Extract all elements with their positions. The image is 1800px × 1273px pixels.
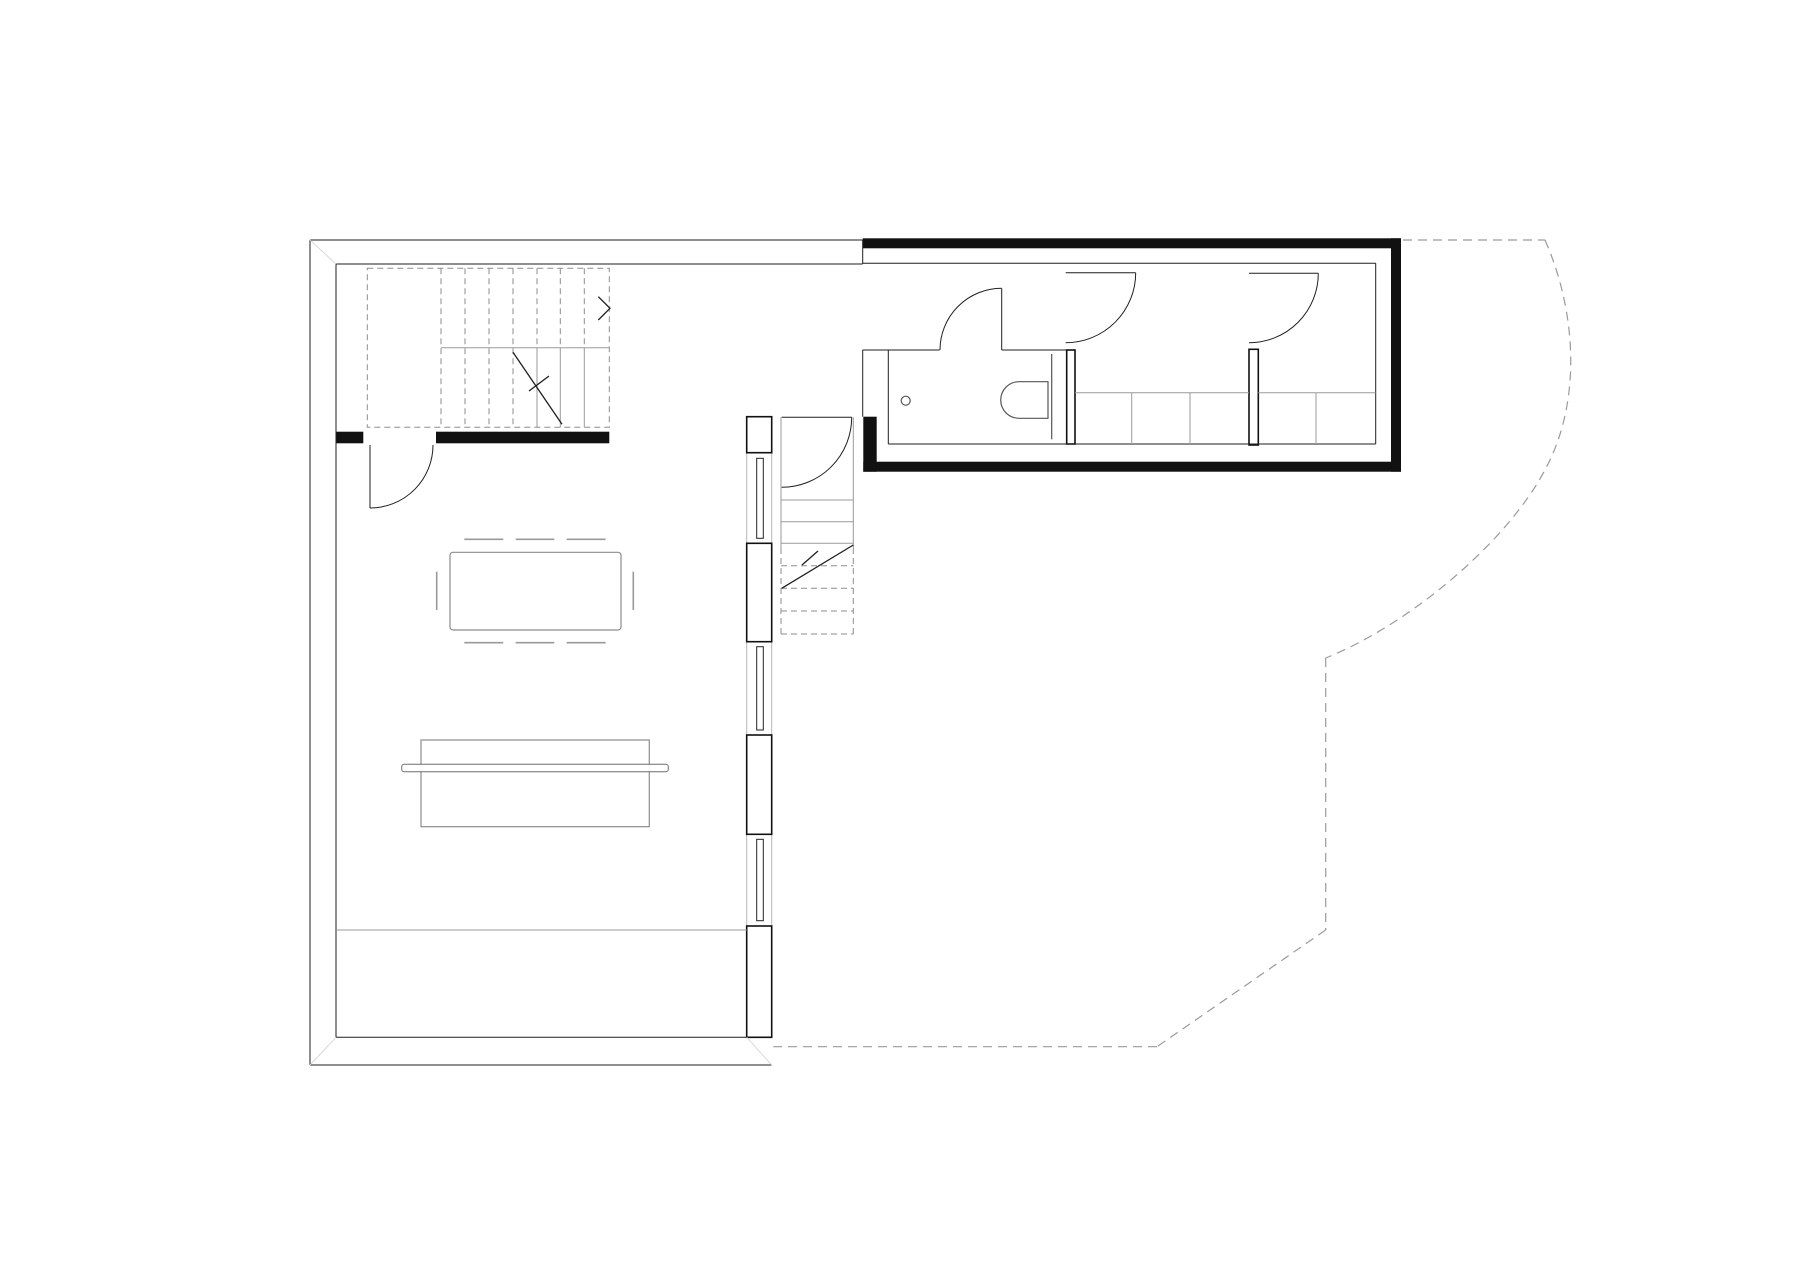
volume-wall-right [1391,238,1401,471]
right-wall-solid [747,926,772,1037]
volume-wall-bottom [863,462,1401,472]
floor-plan-canvas [0,0,1800,1273]
mullion-post-3 [747,735,772,834]
mullion-post-2 [747,543,772,641]
stairwell-door-swing [782,417,852,487]
miter-top-left [310,240,336,264]
sofa-backrest-bar [402,764,669,771]
entry-door-swing [370,445,433,508]
dining-table [450,552,621,630]
stair-up-direction-arrow [598,297,610,320]
sofa-bench [421,740,649,827]
interior-wall-stub [336,432,363,444]
interior-wall-black [436,432,609,444]
room3-door-swing [1249,273,1318,342]
toilet-bowl [1001,382,1048,419]
miter-bottom-right [747,1037,772,1065]
stair-down-cut-tick [802,551,818,565]
window-glazing-2 [757,647,764,730]
closet-partition-2 [1249,349,1258,445]
mullion-post-1 [747,417,772,453]
miter-bottom-left [310,1037,336,1065]
floor-drain [901,396,910,405]
room2-door-swing [1066,273,1136,343]
closet-partition-1 [1067,350,1075,444]
window-glazing-1 [757,458,764,538]
site-boundary-curve [1326,240,1571,658]
stair-up-cut-tick [529,376,549,391]
site-boundary-diagonal [1157,930,1326,1047]
volume-wall-left-stub [863,417,876,472]
floor-plan-svg [0,0,1800,1273]
bath-door-swing [940,288,1002,350]
window-glazing-3 [757,839,764,920]
volume-wall-top [863,238,1401,248]
